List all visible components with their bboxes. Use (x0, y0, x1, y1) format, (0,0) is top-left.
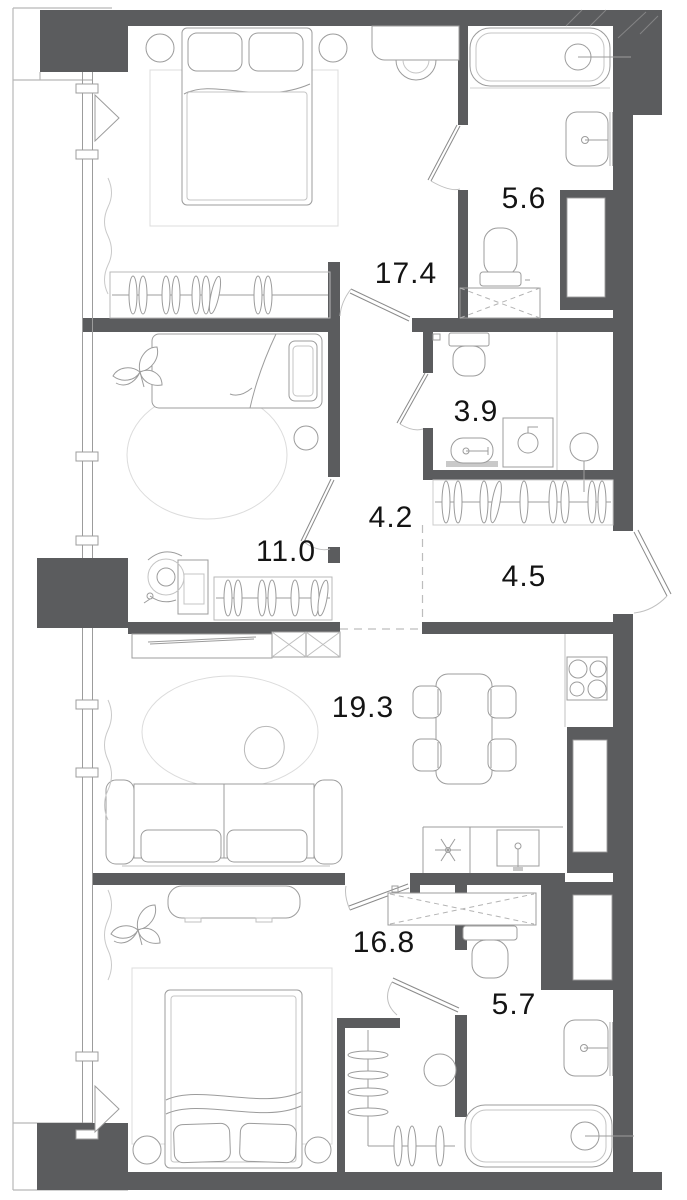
wardrobe-hangers (214, 577, 332, 620)
door-bedroom-upper (340, 289, 410, 321)
bedroom-middle-furniture (113, 334, 332, 620)
curtain (105, 890, 112, 980)
coffee-table (244, 726, 284, 768)
sofa (106, 780, 342, 866)
rug (127, 391, 287, 519)
hallway-wardrobe (433, 480, 613, 525)
hob (565, 634, 607, 727)
sink (566, 112, 613, 166)
floor-plan: 17.4 5.6 3.9 4.2 11.0 4.5 19.3 16.8 5.7 (0, 0, 687, 1200)
hob-star (435, 839, 461, 861)
walls (37, 10, 662, 1190)
side-table (294, 426, 318, 450)
zone-dashed-lines (340, 525, 423, 629)
room-label-living-kitchen: 19.3 (332, 691, 394, 724)
bench (168, 886, 300, 922)
washing-machine (503, 418, 553, 467)
bathtub (470, 28, 631, 88)
door-bath-lower (388, 978, 459, 1015)
dining-table (436, 674, 492, 784)
entry-door (634, 530, 671, 613)
sink (446, 438, 498, 467)
living-kitchen-furniture (105, 632, 608, 873)
washing-machine (460, 288, 540, 318)
single-bed (152, 334, 322, 408)
room-label-bedroom-lower: 16.8 (353, 926, 415, 959)
double-bed (182, 28, 312, 205)
toilet (449, 333, 489, 376)
double-bed (165, 990, 302, 1168)
room-label-bedroom-middle: 11.0 (256, 535, 316, 568)
tv-console (132, 632, 340, 658)
room-label-bedroom-upper: 17.4 (375, 257, 437, 290)
room-label-corridor: 4.2 (369, 501, 414, 534)
pouf (424, 1054, 456, 1086)
desk-with-person (144, 552, 208, 614)
desk (372, 26, 459, 80)
wardrobe-hangers (110, 272, 330, 318)
room-label-bathroom-upper: 5.6 (502, 182, 547, 215)
floor-plan-page: 17.4 5.6 3.9 4.2 11.0 4.5 19.3 16.8 5.7 (0, 0, 687, 1200)
room-label-wc: 3.9 (454, 395, 499, 428)
door-bath-upper (428, 125, 460, 190)
nightstand (146, 34, 174, 62)
nightstand (305, 1137, 331, 1163)
nightstand (319, 34, 347, 62)
door-wc (397, 373, 428, 430)
rug (142, 676, 318, 788)
toilet (480, 228, 530, 286)
nightstand (133, 1136, 161, 1164)
room-label-bathroom-lower: 5.7 (492, 988, 537, 1021)
bedroom-lower-furniture (105, 886, 333, 1168)
kitchen-sink (497, 830, 539, 871)
wall-tap (433, 334, 440, 340)
toilet (463, 926, 517, 978)
kitchen-counter (423, 827, 563, 873)
sink (564, 1020, 613, 1076)
plant (111, 905, 160, 945)
bathtub (465, 1105, 634, 1167)
balcony-door-wedge-top (95, 95, 119, 141)
room-label-hallway: 4.5 (502, 560, 547, 593)
closet (348, 1030, 456, 1166)
